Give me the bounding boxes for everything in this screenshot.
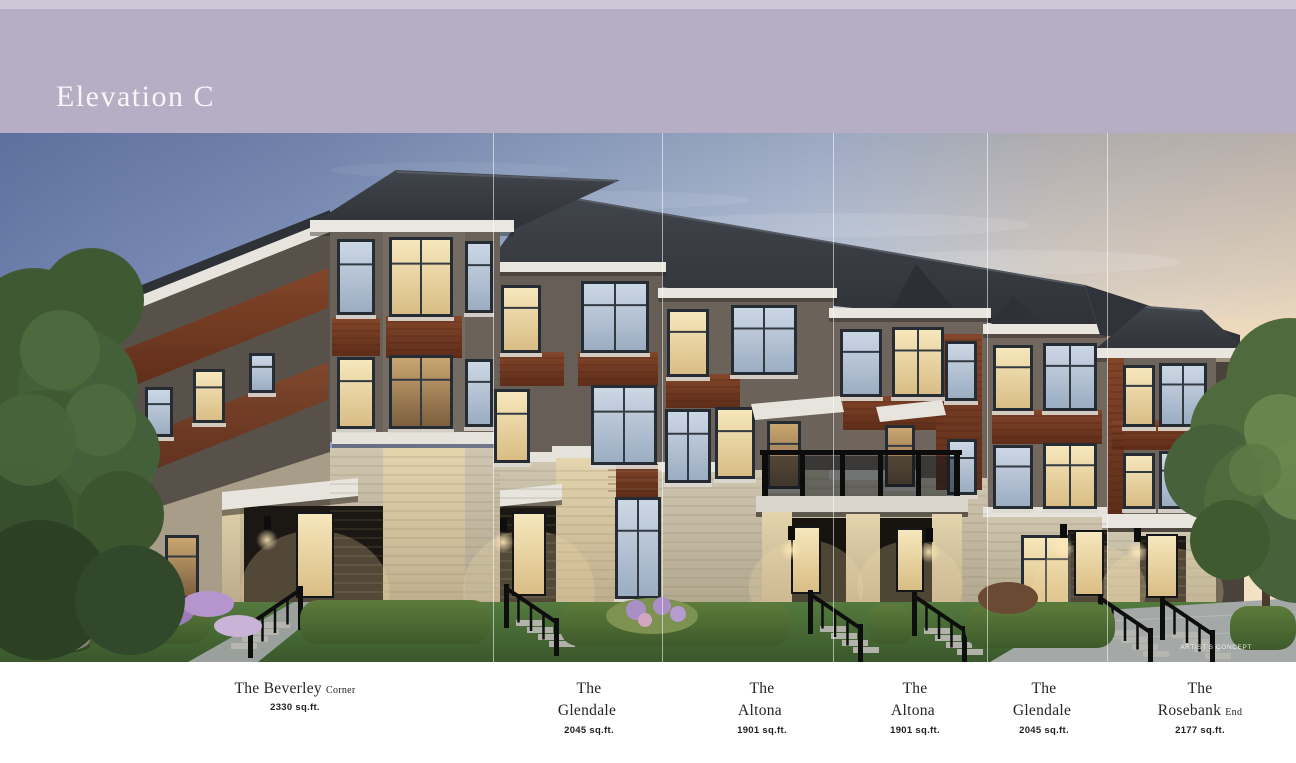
page-title: Elevation C xyxy=(56,80,215,114)
unit-label-altona-2: The Altona 1901 sq.ft. xyxy=(890,680,940,736)
unit-name: Altona xyxy=(890,702,940,722)
unit-area: 1901 sq.ft. xyxy=(890,725,940,736)
unit-name: Altona xyxy=(737,702,787,722)
unit-area: 2045 sq.ft. xyxy=(1013,725,1075,736)
unit-area: 1901 sq.ft. xyxy=(737,725,787,736)
elevation-rendering: ARTIST'S CONCEPT xyxy=(0,133,1296,662)
banner: Elevation C xyxy=(0,0,1296,133)
rendering-scene xyxy=(0,133,1296,662)
unit-label-glendale-2: The Glendale 2045 sq.ft. xyxy=(1013,680,1075,736)
unit-labels: The BeverleyCorner 2330 sq.ft. The Glend… xyxy=(0,662,1296,763)
unit-name: RosebankEnd xyxy=(1158,702,1243,722)
brochure-page: Elevation C xyxy=(0,0,1296,763)
unit-name: The BeverleyCorner xyxy=(234,680,355,700)
unit-label-beverley: The BeverleyCorner 2330 sq.ft. xyxy=(234,680,355,713)
unit-label-glendale-1: The Glendale 2045 sq.ft. xyxy=(558,680,620,736)
unit-name: Glendale xyxy=(558,702,620,722)
banner-accent-strip xyxy=(0,0,1296,9)
unit-name: Glendale xyxy=(1013,702,1075,722)
unit-label-rosebank: The RosebankEnd 2177 sq.ft. xyxy=(1158,680,1243,736)
unit-area: 2045 sq.ft. xyxy=(558,725,620,736)
artists-concept-caption: ARTIST'S CONCEPT xyxy=(1150,644,1276,651)
unit-label-altona-1: The Altona 1901 sq.ft. xyxy=(737,680,787,736)
unit-area: 2177 sq.ft. xyxy=(1158,725,1243,736)
unit-area: 2330 sq.ft. xyxy=(234,702,355,713)
